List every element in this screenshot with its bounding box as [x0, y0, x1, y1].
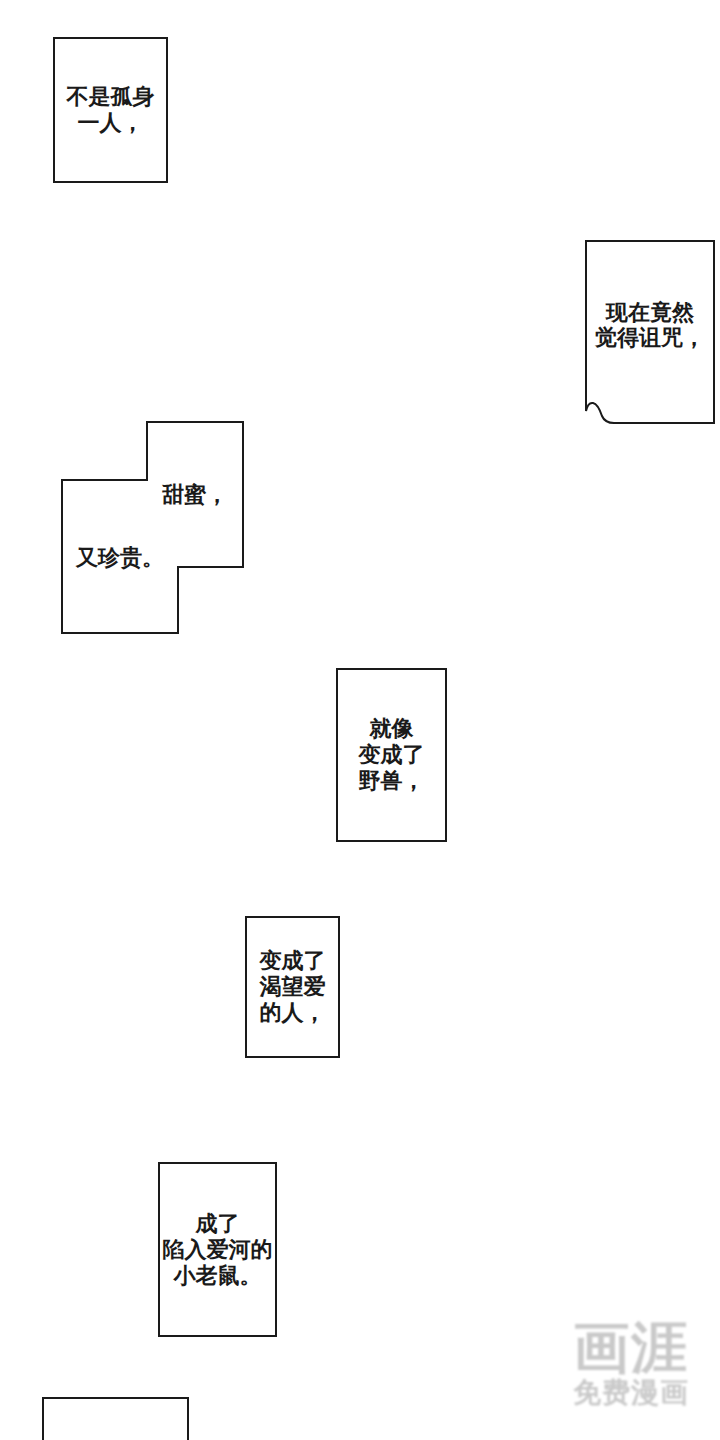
- bubble-6-line-1: 成了: [196, 1211, 240, 1237]
- bubble-1-line-1: 不是孤身: [67, 84, 155, 110]
- speech-bubble-1: 不是孤身 一人，: [53, 37, 168, 183]
- speech-bubble-4: 就像 变成了 野兽，: [336, 668, 447, 842]
- bubble-5-line-3: 的人，: [260, 1000, 326, 1026]
- comic-page: 不是孤身 一人， 现在竟然 觉得诅咒， 甜蜜， 又珍贵。 就像 变成了 野兽， …: [0, 0, 720, 1440]
- watermark-logo-text: 画涯: [553, 1320, 709, 1376]
- bubble-5-line-2: 渴望爱: [260, 974, 326, 1000]
- bubble-3-text-top: 甜蜜，: [162, 482, 228, 507]
- speech-bubble-2: 现在竟然 觉得诅咒，: [585, 240, 715, 425]
- speech-bubble-5: 变成了 渴望爱 的人，: [245, 916, 340, 1058]
- bubble-4-line-3: 野兽，: [359, 768, 425, 794]
- speech-bubble-3: 甜蜜， 又珍贵。: [61, 421, 244, 634]
- bubble-4-line-1: 就像: [370, 716, 414, 742]
- watermark-subtitle-text: 免费漫画: [553, 1378, 709, 1408]
- bubble-2-line-2: 觉得诅咒，: [595, 325, 705, 350]
- site-watermark: 画涯 免费漫画: [553, 1320, 709, 1408]
- bubble-1-line-2: 一人，: [78, 110, 144, 136]
- bubble-6-line-3: 小老鼠。: [174, 1263, 262, 1289]
- bubble-6-line-2: 陷入爱河的: [163, 1237, 273, 1263]
- speech-bubble-7-partial: [42, 1397, 189, 1440]
- bubble-3-outline: [61, 421, 244, 634]
- bubble-5-line-1: 变成了: [260, 948, 326, 974]
- bubble-4-line-2: 变成了: [359, 742, 425, 768]
- bubble-2-line-1: 现在竟然: [606, 300, 694, 325]
- speech-bubble-6: 成了 陷入爱河的 小老鼠。: [158, 1162, 277, 1337]
- bubble-3-text-bottom: 又珍贵。: [76, 545, 164, 570]
